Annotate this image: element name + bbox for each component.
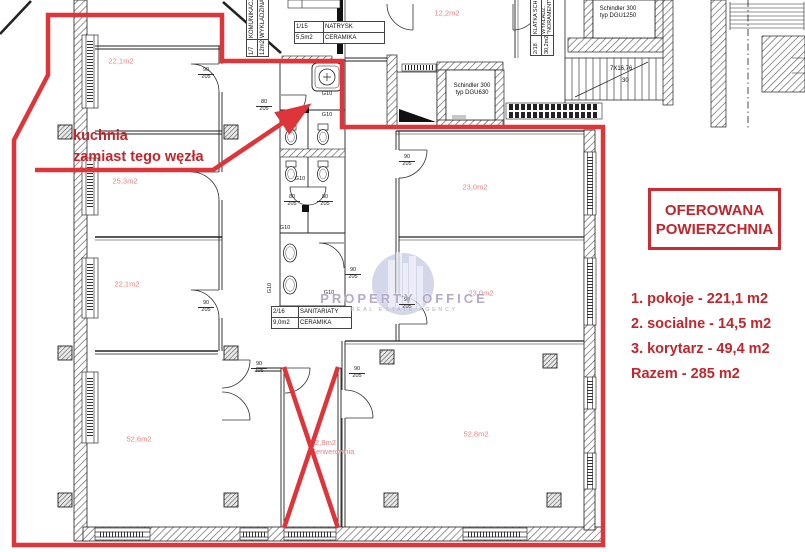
floor-plan-page: 22,1m225,3m222,1m252,6m212,2m223,0m223,0… — [0, 0, 805, 552]
toilet-icon — [286, 161, 297, 182]
electrical-box-icon — [302, 106, 309, 113]
electrical-box-icon — [302, 205, 309, 212]
toilet-icon — [318, 161, 329, 182]
columns — [58, 125, 561, 507]
sink-icon — [284, 244, 297, 262]
toilet-icon — [318, 124, 329, 145]
toilet-icon — [286, 124, 297, 145]
watermark-logo — [372, 252, 434, 315]
sink-icon — [284, 276, 297, 294]
floor-plan-linework — [0, 0, 805, 552]
sanitary-fixtures — [284, 63, 343, 294]
